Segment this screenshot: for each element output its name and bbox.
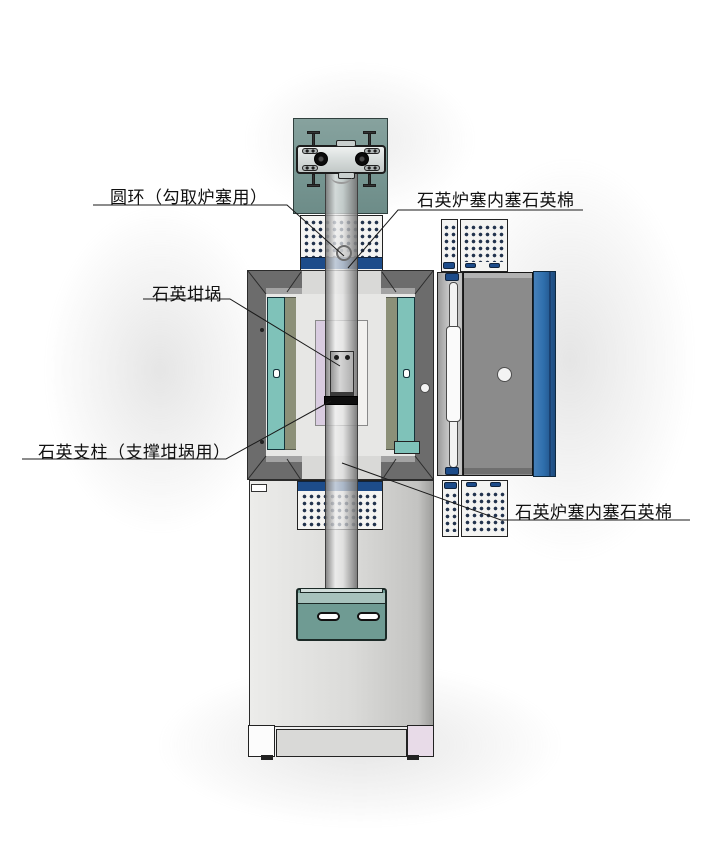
label-quartz-crucible: 石英坩埚 — [152, 280, 222, 305]
leader-crucible — [143, 299, 340, 366]
frame-miter-lines — [248, 271, 433, 480]
label-quartz-wool-top: 石英炉塞内塞石英棉 — [417, 186, 575, 211]
label-lifting-ring: 圆环（勾取炉塞用） — [110, 183, 268, 208]
leader-lines — [0, 0, 718, 843]
label-quartz-wool-bottom: 石英炉塞内塞石英棉 — [515, 498, 673, 523]
leader-ring — [93, 205, 344, 256]
label-quartz-support: 石英支柱（支撑坩埚用） — [38, 438, 231, 463]
leader-wool-top — [348, 210, 583, 268]
furnace-cross-section-diagram: 圆环（勾取炉塞用） 石英炉塞内塞石英棉 石英坩埚 石英支柱（支撑坩埚用） 石英炉… — [0, 0, 718, 843]
